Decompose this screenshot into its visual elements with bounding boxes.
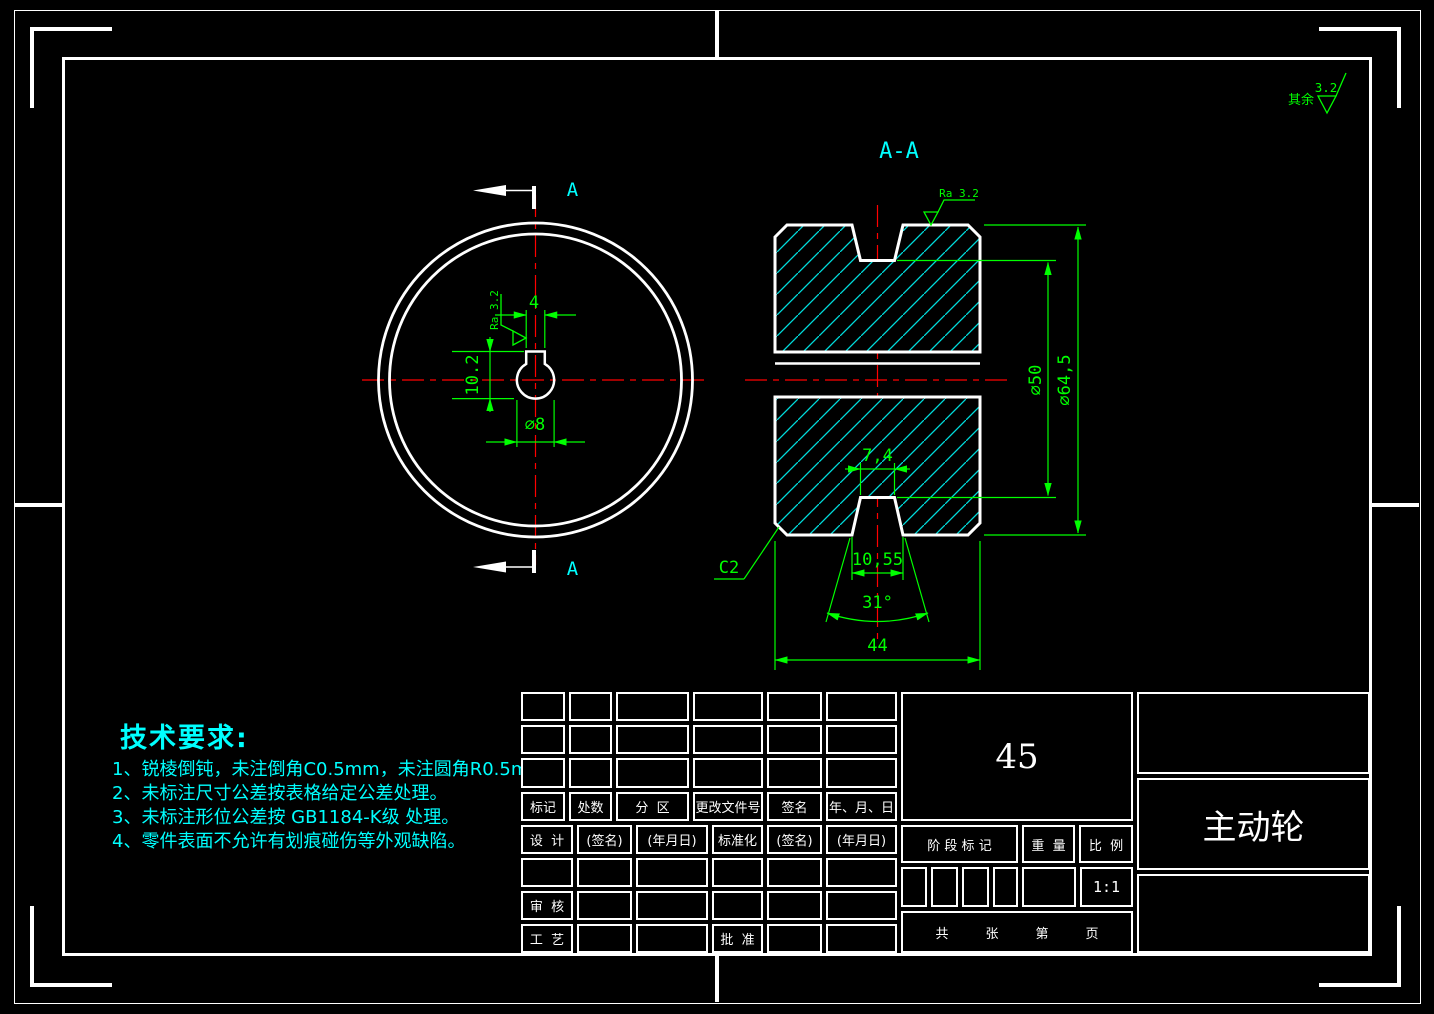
titleblock-cell [636, 924, 708, 953]
dim-groove-angle-text: 31° [862, 593, 893, 613]
titleblock-header-mark: 标记 [521, 792, 565, 821]
titleblock-cell [826, 725, 897, 754]
titleblock-standardize: 标准化 [712, 825, 763, 854]
titleblock-cell [577, 891, 632, 920]
roughness-symbol-tail [1336, 73, 1346, 96]
surface-roughness-keyway: Ra 3.2 [488, 290, 526, 345]
cutting-plane-top [473, 185, 534, 209]
titleblock-stage-label: 阶 段 标 记 [901, 825, 1018, 863]
titleblock-cell [693, 725, 763, 754]
sheet-sheets-label: 张 [985, 923, 998, 942]
cutting-plane-bottom [473, 550, 534, 573]
titleblock-cell [767, 692, 822, 721]
technical-requirements-title: 技术要求: [120, 716, 532, 755]
titleblock-cell [712, 891, 763, 920]
titleblock-header-count: 处数 [569, 792, 612, 821]
titleblock-cell [577, 924, 632, 953]
titleblock-cell [521, 758, 565, 788]
drawing-sheet: A A 4 Ra 3.2 [0, 0, 1434, 1014]
titleblock-scale-label: 比 例 [1079, 825, 1133, 863]
section-arrow-top [473, 185, 506, 196]
titleblock-cell [826, 924, 897, 953]
sheet-no-label: 第 [1035, 923, 1048, 942]
dim-keyway-width-text: 4 [529, 293, 539, 313]
titleblock-cell [993, 867, 1018, 907]
front-view: A A 4 Ra 3.2 [362, 179, 708, 580]
dim-groove-bottom-width-text: 7,4 [862, 446, 893, 466]
titleblock-approve: 批 准 [712, 924, 763, 953]
surface-roughness-keyway-text: Ra 3.2 [488, 290, 501, 330]
dim-groove-root-text: ∅50 [1026, 365, 1046, 396]
titleblock-company-cell [1137, 692, 1370, 774]
titleblock-cell [767, 758, 822, 788]
titleblock-cell [693, 758, 763, 788]
sheet-page-label: 页 [1085, 923, 1098, 942]
general-note-roughness: 3.2 [1315, 80, 1338, 95]
titleblock-cell [826, 692, 897, 721]
titleblock-check: 审 核 [521, 891, 573, 920]
titleblock-cell [636, 891, 708, 920]
titleblock-drawing-no-cell [1137, 874, 1370, 953]
dim-overall-width-text: 44 [867, 636, 887, 656]
titleblock-header-zone: 分 区 [616, 792, 689, 821]
titleblock-cell [1022, 867, 1076, 907]
titleblock-weight-label: 重 量 [1022, 825, 1075, 863]
tech-requirement-item: 3、未标注形位公差按 GB1184-K级 处理。 [112, 807, 532, 829]
titleblock-cell [931, 867, 958, 907]
dim-outer-dia-text: ∅64,5 [1055, 354, 1075, 405]
dim-bore-text: ∅8 [525, 415, 545, 435]
titleblock-cell [616, 758, 689, 788]
titleblock-cell [767, 725, 822, 754]
titleblock-cell [569, 758, 612, 788]
titleblock-cell [712, 858, 763, 887]
dim-keyway-depth-text: 10.2 [463, 355, 483, 396]
titleblock-cell [693, 692, 763, 721]
titleblock-cell [826, 858, 897, 887]
titleblock-cell [521, 858, 573, 887]
titleblock-design: 设 计 [521, 825, 573, 854]
surface-roughness-groove: Ra 3.2 [924, 187, 979, 225]
roughness-symbol [1318, 96, 1336, 113]
titleblock-cell [826, 891, 897, 920]
tech-requirement-item: 4、零件表面不允许有划痕碰伤等外观缺陷。 [112, 831, 532, 853]
titleblock-sign1: (签名) [577, 825, 632, 854]
chamfer-text: C2 [719, 558, 739, 578]
section-letter-top: A [567, 179, 579, 201]
titleblock-scale-value: 1:1 [1080, 867, 1133, 907]
titleblock-header-date: 年、月、日 [826, 792, 897, 821]
dim-groove-top-width-text: 10,55 [852, 550, 903, 570]
titleblock-header-docno: 更改文件号 [693, 792, 763, 821]
titleblock-cell [826, 758, 897, 788]
titleblock-cell [767, 858, 822, 887]
surface-roughness-groove-text: Ra 3.2 [939, 187, 979, 200]
titleblock-cell [767, 891, 822, 920]
titleblock-header-signature: 签名 [767, 792, 822, 821]
section-upper-body [775, 225, 980, 352]
titleblock-cell [616, 692, 689, 721]
sheet-total-label: 共 [935, 923, 948, 942]
section-title: A-A [879, 139, 919, 164]
titleblock-craft: 工 艺 [521, 924, 573, 953]
section-arrow-bottom [473, 562, 506, 573]
titleblock-cell [901, 867, 927, 907]
titleblock-cell [577, 858, 632, 887]
titleblock-date2: (年月日) [826, 825, 897, 854]
titleblock-date1: (年月日) [636, 825, 708, 854]
titleblock-cell [521, 692, 565, 721]
tech-requirement-item: 1、锐棱倒钝，未注倒角C0.5mm，未注圆角R0.5mm。 [112, 759, 532, 781]
titleblock-material: 45 [901, 692, 1133, 821]
titleblock-sheet-row: 共 张 第 页 [901, 911, 1133, 953]
titleblock-cell [569, 725, 612, 754]
tech-requirement-item: 2、未标注尺寸公差按表格给定公差处理。 [112, 783, 532, 805]
titleblock-cell [521, 725, 565, 754]
titleblock-cell [616, 725, 689, 754]
titleblock-part-name: 主动轮 [1137, 778, 1370, 870]
technical-requirements: 技术要求: 1、锐棱倒钝，未注倒角C0.5mm，未注圆角R0.5mm。 2、未标… [112, 716, 532, 855]
titleblock-cell [569, 692, 612, 721]
general-note-prefix: 其余 [1288, 92, 1314, 108]
general-roughness-note: 其余 3.2 [1288, 73, 1346, 113]
titleblock-cell [636, 858, 708, 887]
titleblock-cell [767, 924, 822, 953]
section-view: A-A Ra 3.2 ∅50 ∅64,5 [714, 139, 1086, 670]
titleblock-cell [962, 867, 989, 907]
section-letter-bottom: A [567, 558, 579, 580]
titleblock-sign2: (签名) [767, 825, 822, 854]
